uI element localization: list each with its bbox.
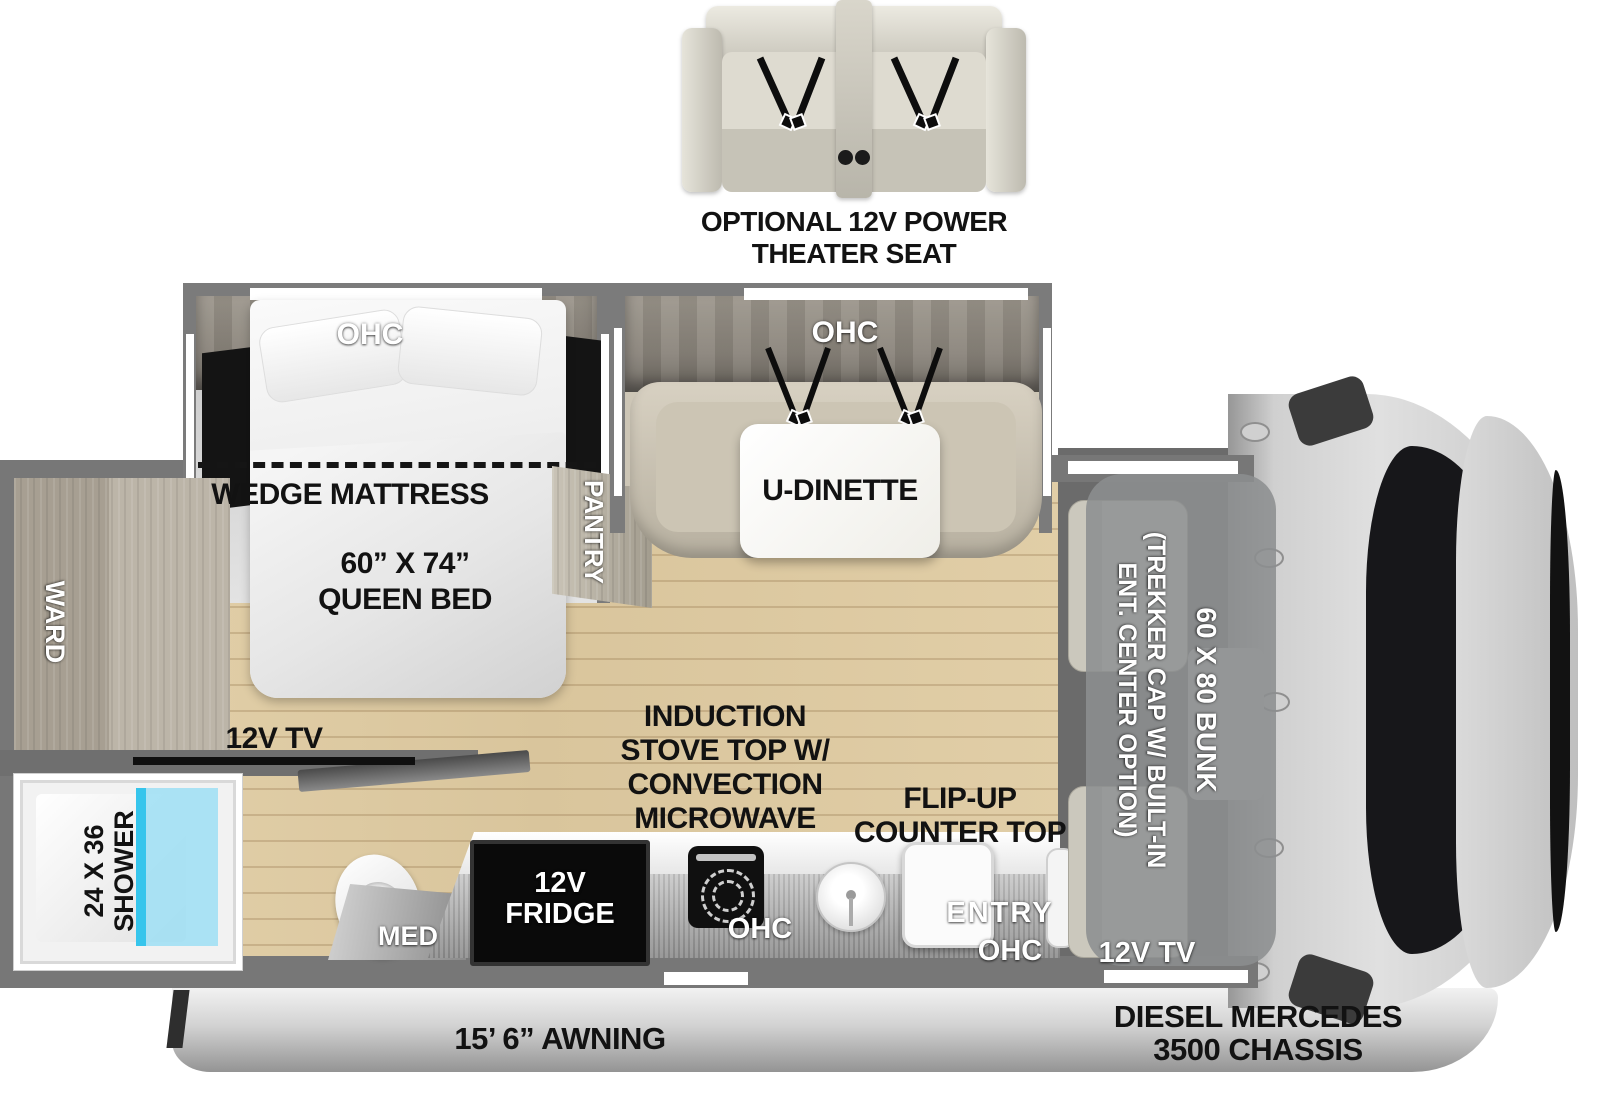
theater-seat-illustration: [676, 0, 1032, 200]
window-icon: [614, 328, 622, 496]
rear-wall: [0, 460, 14, 988]
entry-ohc-label: OHC: [950, 936, 1070, 968]
fridge-label-line2: FRIDGE: [470, 899, 650, 930]
induction-stove-label: INDUCTION STOVE TOP W/ CONVECTION MICROW…: [588, 700, 862, 836]
window-icon: [744, 288, 1028, 300]
rv-floorplan-diagram: OPTIONAL 12V POWER THEATER SEAT: [0, 0, 1600, 1109]
shower-stall: 24 X 36 SHOWER: [14, 774, 242, 970]
cap-rivet-icon: [1240, 422, 1270, 442]
ward-label: WARD: [39, 556, 69, 688]
theater-seat-caption: OPTIONAL 12V POWER THEATER SEAT: [656, 206, 1052, 270]
window-icon: [1043, 328, 1051, 496]
window-icon: [250, 288, 542, 300]
queen-bed-label: 60” X 74” QUEEN BED: [245, 546, 565, 618]
window-icon: [664, 972, 748, 985]
fridge-label: 12V FRIDGE: [470, 868, 650, 930]
slide-out-dashed-line: [198, 462, 596, 468]
bed-type-line: QUEEN BED: [245, 582, 565, 618]
chassis-label: DIESEL MERCEDES 3500 CHASSIS: [1058, 1000, 1458, 1066]
trekker-cap-line1: (TREKKER CAP W/ BUILT-IN: [1141, 440, 1170, 960]
theater-seat-caption-line1: OPTIONAL 12V POWER: [656, 206, 1052, 238]
stove-control-bar: [696, 854, 756, 861]
shower-size-label: 24 X 36: [79, 786, 109, 956]
pantry-label: PANTRY: [580, 467, 608, 597]
shower-glass: [144, 788, 218, 946]
kitchen-sink: [816, 862, 886, 932]
bunk-label: 60 X 80 BUNK: [1191, 500, 1221, 900]
shower-label: 24 X 36 SHOWER: [79, 786, 141, 956]
trekker-cap-line2: ENT. CENTER OPTION): [1112, 440, 1141, 960]
med-label: MED: [358, 922, 458, 952]
awning-label: 15’ 6” AWNING: [370, 1022, 750, 1057]
theater-seat-caption-line2: THEATER SEAT: [656, 238, 1052, 270]
flip-up-counter: [902, 842, 994, 948]
stove-label-line3: CONVECTION: [588, 768, 862, 802]
faucet-icon: [849, 898, 853, 926]
bedroom-tv-underline: [133, 757, 415, 765]
window-icon: [1104, 970, 1248, 983]
bedroom-tv-label: 12V TV: [133, 722, 415, 756]
u-dinette-label: U-DINETTE: [762, 474, 918, 508]
dinette-table: U-DINETTE: [740, 424, 940, 558]
burner-ring-icon: [712, 880, 744, 912]
shower-word-label: SHOWER: [109, 786, 139, 956]
flip-up-line1: FLIP-UP: [852, 782, 1068, 816]
stove-label-line4: MICROWAVE: [588, 802, 862, 836]
wedge-mattress-label: WEDGE MATTRESS: [170, 478, 530, 512]
chassis-line2: 3500 CHASSIS: [1058, 1033, 1458, 1066]
trekker-cap-label: (TREKKER CAP W/ BUILT-IN ENT. CENTER OPT…: [1112, 440, 1170, 960]
kitchen-ohc-label: OHC: [700, 914, 820, 946]
stove-label-line2: STOVE TOP W/: [588, 734, 862, 768]
dinette-ohc-label: OHC: [775, 316, 915, 349]
flip-up-counter-label: FLIP-UP COUNTER TOP: [852, 782, 1068, 850]
chassis-line1: DIESEL MERCEDES: [1058, 1000, 1458, 1033]
bed-size-line: 60” X 74”: [245, 546, 565, 582]
fridge-label-line1: 12V: [470, 868, 650, 899]
cab-tv-label: 12V TV: [1082, 938, 1212, 970]
stove-label-line1: INDUCTION: [588, 700, 862, 734]
cab-front-trim: [1550, 470, 1570, 932]
bedroom-ohc-label: OHC: [300, 318, 440, 351]
flip-up-line2: COUNTER TOP: [852, 816, 1068, 850]
seatbelts-icon: [676, 0, 1032, 200]
entry-label: ENTRY: [930, 898, 1070, 930]
